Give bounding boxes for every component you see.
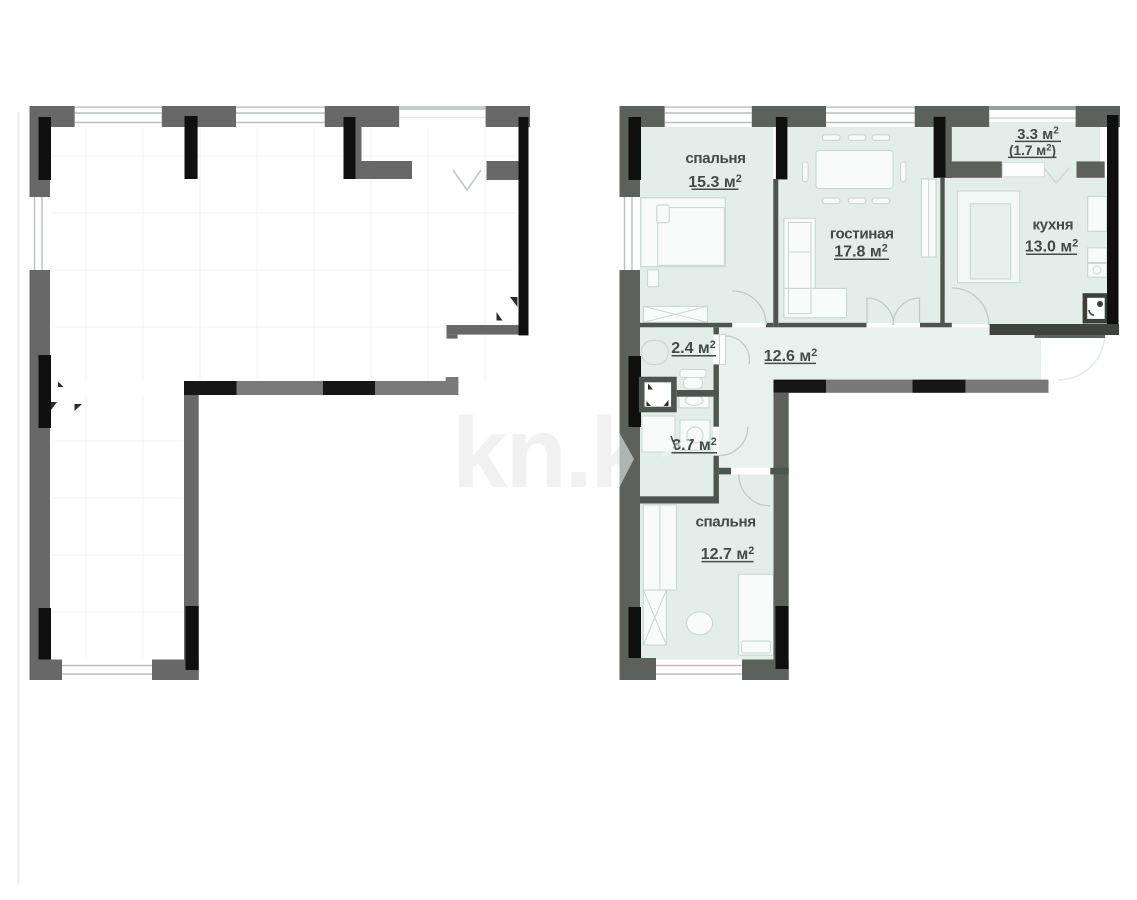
svg-text:гостиная: гостиная (830, 226, 894, 243)
svg-text:12.6 м2: 12.6 м2 (764, 347, 817, 365)
svg-text:спальня: спальня (695, 514, 755, 531)
svg-text:13.0 м2: 13.0 м2 (1025, 237, 1078, 255)
svg-text:3.3 м2: 3.3 м2 (1017, 126, 1059, 143)
svg-text:2.4 м2: 2.4 м2 (671, 339, 716, 357)
svg-text:кухня: кухня (1032, 217, 1073, 234)
svg-text:спальня: спальня (685, 150, 745, 167)
svg-text:15.3 м2: 15.3 м2 (688, 173, 741, 191)
svg-text:12.7 м2: 12.7 м2 (701, 545, 754, 563)
svg-text:17.8 м2: 17.8 м2 (834, 242, 887, 260)
